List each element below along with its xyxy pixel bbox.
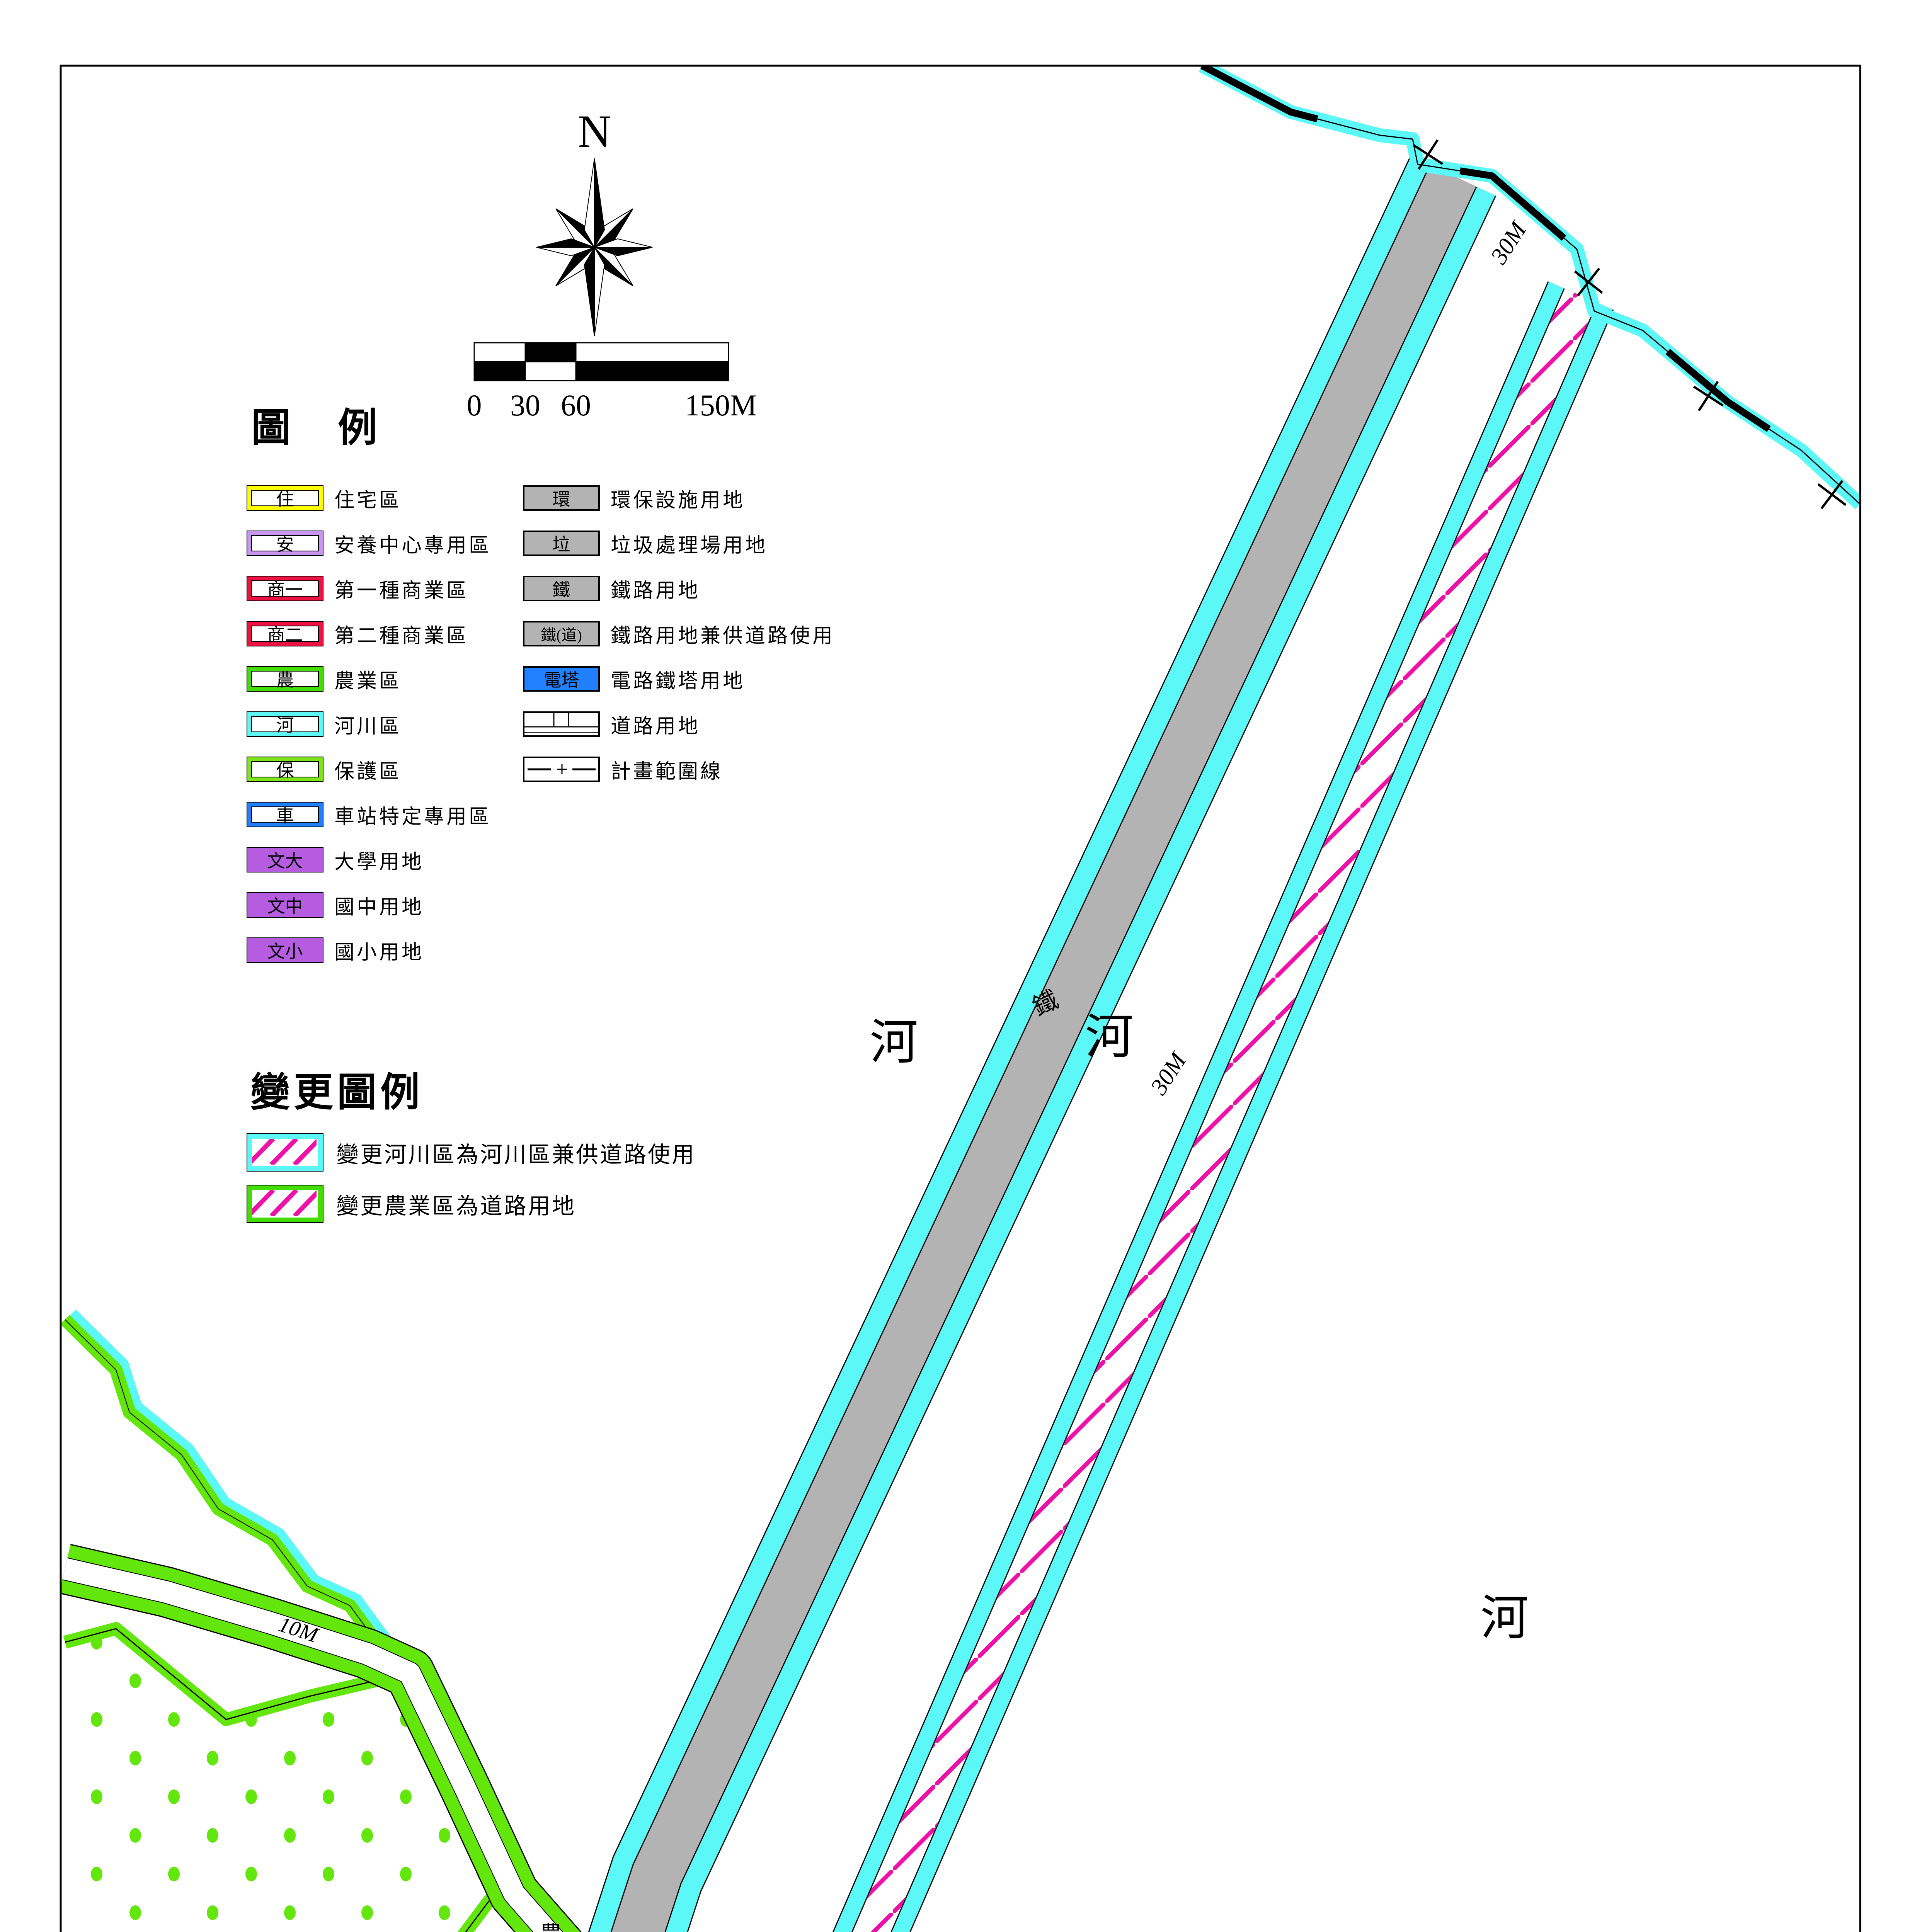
legend-title: 圖 例 xyxy=(251,396,381,453)
commercial-2-key: 商二 xyxy=(267,621,303,646)
junior-high-key: 文中 xyxy=(267,892,303,918)
power-tower-key: 電塔 xyxy=(544,666,579,692)
university-swatch: 文大 xyxy=(247,848,323,872)
power-tower-swatch: 電塔 xyxy=(524,667,599,691)
railway-road-label: 鐵路用地兼供道路使用 xyxy=(611,622,835,646)
plan-boundary-label: 計畫範圍線 xyxy=(611,757,723,781)
road-label: 道路用地 xyxy=(611,712,700,736)
river-label: 河川區 xyxy=(334,712,402,736)
commercial-1-label: 第一種商業區 xyxy=(334,577,469,600)
commercial-2-swatch: 商二 xyxy=(247,622,323,646)
change-farm-road-swatch xyxy=(247,1185,323,1222)
commercial-1-swatch: 商一 xyxy=(247,577,323,600)
residential-swatch: 住 xyxy=(247,486,323,510)
care-center-key: 安 xyxy=(276,531,294,556)
garbage-swatch: 垃 xyxy=(524,531,599,555)
agriculture-key: 農 xyxy=(276,666,294,692)
agriculture-swatch: 農 xyxy=(247,667,323,691)
elementary-swatch: 文小 xyxy=(247,938,323,962)
care-center-swatch: 安 xyxy=(247,531,323,555)
railway-road-key: 鐵(道) xyxy=(541,622,582,645)
power-tower-label: 電路鐵塔用地 xyxy=(611,667,745,691)
legend-overlay: 圖 例 住 住宅區 安 安養中心專用區 商一 第一種商業區 商二 第二種商業區 … xyxy=(0,0,1917,1932)
change-river-road-label: 變更河川區為河川區兼供道路使用 xyxy=(336,1134,696,1171)
river-swatch: 河 xyxy=(247,712,323,736)
environment-key: 環 xyxy=(553,485,570,511)
plan-map-page: 河 鐵 河 30M 30M 河 10M 農 農 10M 30M 農 農 農 N xyxy=(0,0,1917,1932)
railway-road-swatch: 鐵(道) xyxy=(524,622,599,646)
university-label: 大學用地 xyxy=(334,848,424,872)
change-farm-road-label: 變更農業區為道路用地 xyxy=(336,1185,576,1222)
change-river-road-hatch-icon xyxy=(252,1139,317,1165)
elementary-label: 國小用地 xyxy=(334,938,424,962)
elementary-key: 文小 xyxy=(267,937,303,963)
junior-high-label: 國中用地 xyxy=(334,893,424,917)
junior-high-swatch: 文中 xyxy=(247,893,323,917)
road-swatch xyxy=(524,712,599,736)
protection-swatch: 保 xyxy=(247,757,323,781)
station-label: 車站特定專用區 xyxy=(334,803,491,827)
station-key: 車 xyxy=(276,802,294,827)
commercial-2-label: 第二種商業區 xyxy=(334,622,469,646)
station-swatch: 車 xyxy=(247,803,323,827)
care-center-label: 安養中心專用區 xyxy=(334,531,491,555)
railway-swatch: 鐵 xyxy=(524,577,599,600)
river-key: 河 xyxy=(276,711,294,737)
garbage-label: 垃圾處理場用地 xyxy=(611,531,768,555)
environment-swatch: 環 xyxy=(524,486,599,510)
change-river-road-swatch xyxy=(247,1134,323,1171)
railway-key: 鐵 xyxy=(553,576,570,601)
road-symbol-icon xyxy=(524,713,598,735)
agriculture-label: 農業區 xyxy=(334,667,402,691)
residential-key: 住 xyxy=(276,485,294,511)
railway-label: 鐵路用地 xyxy=(611,577,700,600)
residential-label: 住宅區 xyxy=(334,486,402,510)
change-legend-title: 變更圖例 xyxy=(250,1061,424,1117)
protection-label: 保護區 xyxy=(334,757,402,781)
change-farm-road-hatch-icon xyxy=(252,1190,317,1216)
commercial-1-key: 商一 xyxy=(267,576,303,601)
garbage-key: 垃 xyxy=(553,531,570,556)
plan-boundary-symbol-icon xyxy=(524,758,598,781)
plan-boundary-swatch xyxy=(524,757,599,781)
protection-key: 保 xyxy=(276,757,294,782)
environment-label: 環保設施用地 xyxy=(611,486,745,510)
university-key: 文大 xyxy=(267,847,303,872)
